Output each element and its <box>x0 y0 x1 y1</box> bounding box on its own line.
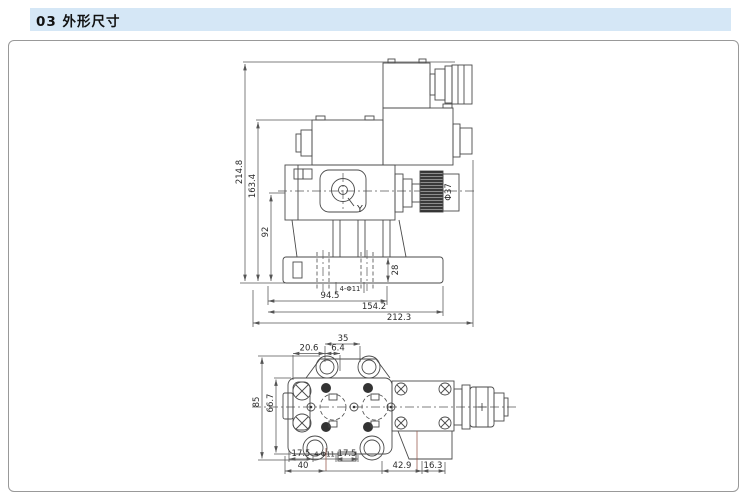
solenoid-bottom <box>392 381 454 459</box>
dim-overall-length: 212.3 <box>387 313 411 323</box>
flange-plate <box>283 356 392 461</box>
port-label: Y <box>356 204 363 215</box>
dim-base-height: 28 <box>391 265 401 276</box>
valve-legs <box>292 220 406 257</box>
side-view: Y Φ37 <box>235 59 476 327</box>
dim-flange-height: 85 <box>252 397 262 408</box>
dim-mounting-holes: 4-Φ11 <box>340 285 361 293</box>
dim-bolt-spacing: 66.7 <box>266 394 276 413</box>
cable-connector <box>383 59 472 108</box>
dim-base-width: 40 <box>298 461 309 471</box>
dim-connector-offset: 16.3 <box>424 461 443 471</box>
dim-top-offset-left: 20.6 <box>300 344 319 354</box>
dim-mid-height: 163.4 <box>248 174 258 198</box>
pilot-coil <box>296 116 383 165</box>
dim-solenoid-offset: 42.9 <box>393 461 412 471</box>
ports <box>307 394 395 427</box>
dim-bottom-left-offset: 17.5 <box>292 449 311 459</box>
bottom-view-dimensions: 35 20.6 6.4 85 66.7 <box>252 334 445 474</box>
dim-bottom-holes: 4-Φ11 <box>314 451 335 459</box>
technical-drawing: Y Φ37 <box>0 0 748 501</box>
valve-body <box>285 165 395 220</box>
solenoid-side <box>383 104 472 165</box>
dim-body-length: 154.2 <box>362 302 386 312</box>
mounting-base <box>283 257 443 283</box>
dim-bottom-mid-offset: 17.5 <box>338 449 357 459</box>
dim-knob-diameter: Φ37 <box>444 183 454 201</box>
page: 03 外形尺寸 <box>0 0 748 501</box>
dim-top-width: 35 <box>338 334 349 344</box>
dim-center-height: 92 <box>261 227 271 238</box>
dim-overall-height: 214.8 <box>235 160 245 184</box>
dim-hole-span: 94.5 <box>321 291 340 301</box>
connector-bottom <box>454 385 508 429</box>
dim-top-offset-mid: 6.4 <box>331 344 345 354</box>
bottom-view: 35 20.6 6.4 85 66.7 <box>252 334 516 474</box>
